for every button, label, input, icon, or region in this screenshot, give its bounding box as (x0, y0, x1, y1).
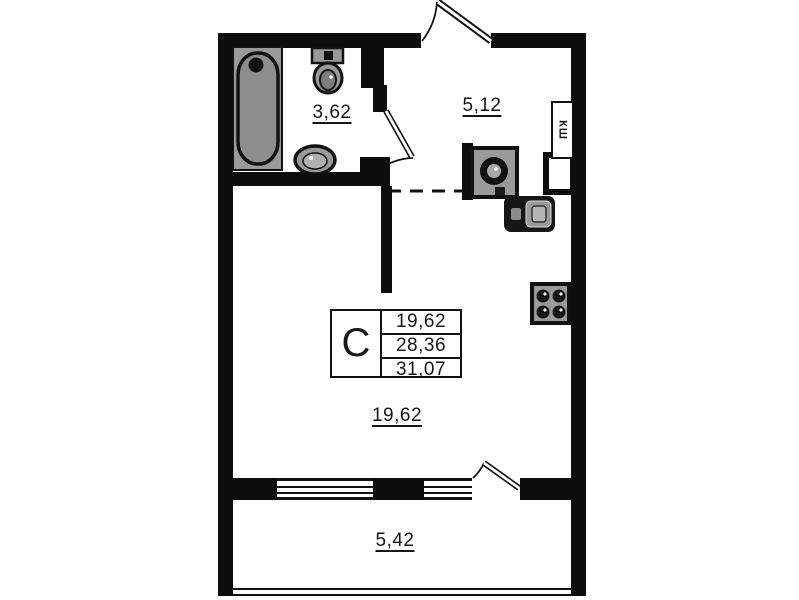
area-info-table: С 19,62 28,36 31,07 (330, 309, 462, 378)
room-label-hallway: 5,12 (463, 95, 502, 117)
window-living-1 (277, 478, 373, 500)
room-label-balcony: 5,42 (376, 530, 415, 552)
washing-machine (472, 148, 517, 197)
area-total-value: 31,07 (382, 359, 460, 381)
wall-bottom-seg1 (233, 478, 277, 500)
room-label-living-room: 19,62 (372, 405, 422, 427)
floor-plan-drawing (0, 0, 799, 600)
area-living-value: 19,62 (382, 311, 460, 335)
toilet (312, 48, 343, 93)
area-without-balcony-value: 28,36 (382, 335, 460, 359)
balcony-door (473, 463, 519, 488)
wall-left (218, 33, 233, 596)
wall-bathroom-right-upper (361, 47, 384, 88)
room-label-bathroom: 3,62 (313, 102, 352, 124)
ventilation-shaft (546, 155, 573, 192)
stove (532, 284, 569, 323)
wall-bathroom-right-stub (373, 85, 387, 112)
entrance-door-swing-arc (422, 2, 437, 41)
wall-bottom-pier (373, 478, 424, 500)
wall-interior-stub (381, 186, 392, 293)
wall-bottom-seg3 (520, 478, 571, 500)
wall-bathroom-corner (360, 157, 390, 186)
apartment-type-cell: С (332, 311, 382, 376)
bathtub (233, 47, 282, 170)
wall-top-left (218, 33, 421, 48)
closet-label: КШ (535, 120, 591, 141)
bathroom-sink (295, 146, 335, 174)
balcony-door-swing-arc (473, 463, 484, 478)
kitchen-sink (504, 196, 555, 232)
area-info-rows: 19,62 28,36 31,07 (382, 311, 460, 376)
entrance-door (422, 2, 491, 41)
floor-plan-canvas: 3,62 5,12 19,62 5,42 КШ С 19,62 28,36 31… (0, 0, 799, 600)
window-living-2 (424, 478, 472, 500)
balcony-glazing (233, 588, 571, 596)
